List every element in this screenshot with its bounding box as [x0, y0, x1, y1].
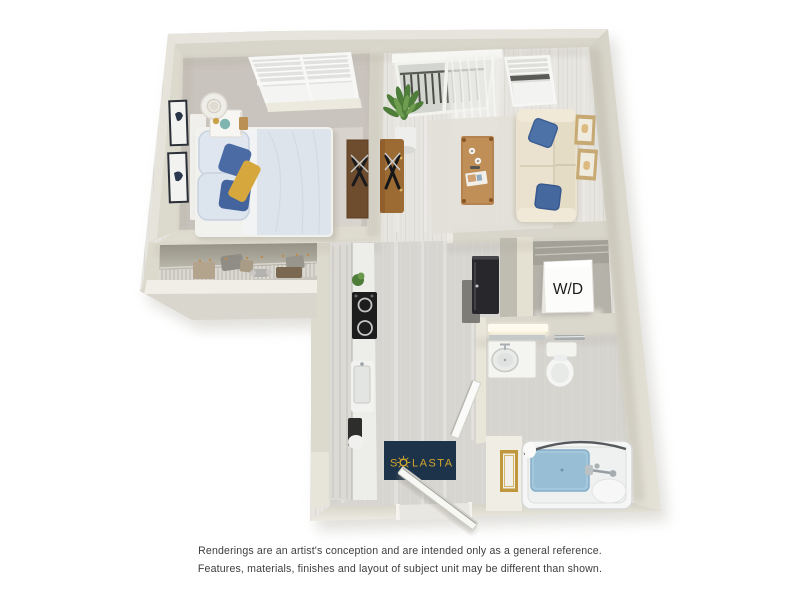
svg-text:LASTA: LASTA: [412, 458, 454, 470]
svg-text:W/D: W/D: [553, 281, 583, 298]
svg-text:S: S: [390, 458, 399, 470]
